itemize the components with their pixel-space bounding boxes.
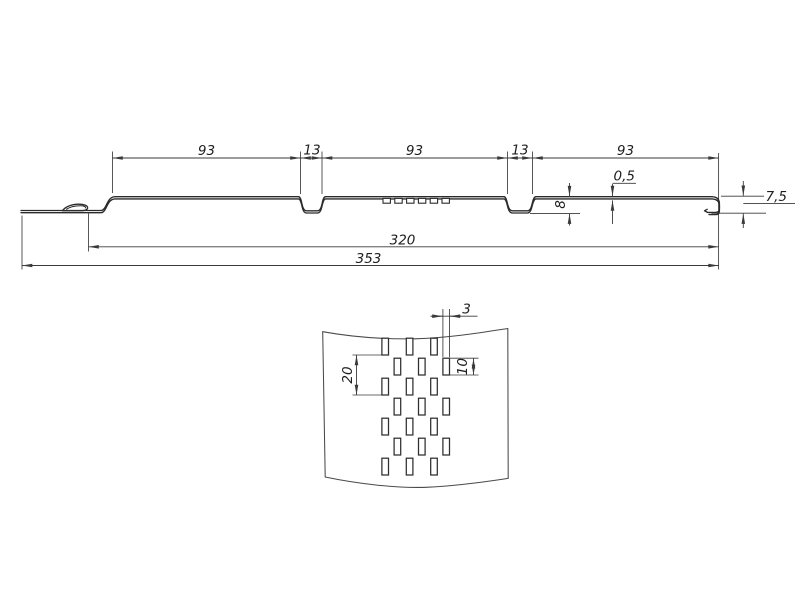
dim-label-93-2: 93 <box>406 143 423 159</box>
detail-panel-outline <box>323 329 509 488</box>
dim-label-slot-pitch: 20 <box>340 366 356 383</box>
dimension-groove-depth: 8 <box>553 183 570 226</box>
dim-label-93-1: 93 <box>198 143 215 159</box>
panel-profile-outline <box>21 197 719 215</box>
dim-label-slot-height: 10 <box>455 358 471 375</box>
profile-section-view: 93 13 93 13 93 <box>21 143 795 270</box>
dim-label-thickness: 0,5 <box>614 169 635 185</box>
dim-label-overall-width: 353 <box>356 251 382 267</box>
dim-label-edge-height: 7,5 <box>766 189 787 205</box>
dim-label-groove-depth: 8 <box>553 200 569 209</box>
left-lock-hook <box>63 204 88 211</box>
dim-label-93-3: 93 <box>617 143 634 159</box>
dimension-cover-width: 320 <box>89 232 719 248</box>
dim-label-cover-width: 320 <box>390 232 416 248</box>
extension-lines <box>22 152 766 270</box>
dimension-edge-height: 7,5 <box>743 181 795 228</box>
panel-drawing-svg: 93 13 93 13 93 <box>0 0 800 600</box>
technical-drawing-page: 93 13 93 13 93 <box>0 0 800 600</box>
dimension-overall-width: 353 <box>22 251 719 267</box>
top-dimension-chain: 93 13 93 13 93 <box>113 143 719 160</box>
dim-label-13-2: 13 <box>511 143 528 159</box>
perforation-detail-view: 20 10 3 <box>323 302 509 488</box>
dim-label-slot-width: 3 <box>462 302 471 318</box>
dim-label-13-1: 13 <box>303 143 320 159</box>
